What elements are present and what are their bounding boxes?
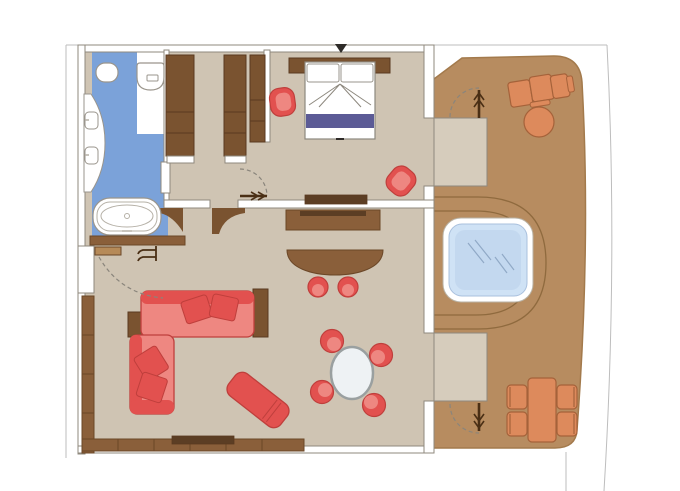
- wardrobe-mid-base: [225, 156, 246, 163]
- bathroom-pocket-door: [161, 162, 170, 193]
- outdoor-dining-table: [528, 378, 556, 442]
- sofa-pillow-2: [209, 294, 239, 322]
- suite-floor-plan: [0, 0, 680, 491]
- balcony-side-table: [524, 107, 554, 137]
- wardrobe-right: [250, 55, 265, 142]
- balcony-landing-living: [434, 333, 487, 401]
- bar-stool-2-seat: [342, 284, 354, 296]
- bathroom-wall-band: [90, 236, 185, 245]
- floor-plan-page: [0, 0, 680, 491]
- entry-door-recess: [78, 246, 94, 293]
- dining-table: [331, 347, 373, 399]
- toilet: [137, 63, 164, 90]
- wall-hallway-left: [164, 200, 210, 208]
- dining-chair-3-seat: [318, 383, 332, 397]
- bedroom-dresser: [305, 195, 367, 204]
- wardrobe-left-base: [167, 156, 194, 163]
- wall-basin: [96, 63, 118, 82]
- bed-pillow-right: [341, 64, 373, 82]
- bed-pillow-left: [307, 64, 339, 82]
- entry-door-leaf: [95, 247, 121, 255]
- wall-top: [78, 45, 434, 52]
- bar-stool-1-seat: [312, 284, 324, 296]
- hull-outline-right: [604, 45, 612, 491]
- hottub-water-shade: [455, 230, 521, 290]
- wall-balcony-lower: [424, 401, 434, 453]
- sofa-chaise-end: [130, 400, 174, 414]
- bed-runner: [306, 114, 374, 128]
- dining-chair-2-seat: [371, 350, 385, 364]
- wall-balcony-upper: [424, 45, 434, 118]
- tv: [300, 211, 366, 216]
- balcony-landing-bedroom: [434, 118, 487, 186]
- dining-chair-1-seat: [327, 337, 341, 351]
- sofa-arm-table: [128, 312, 142, 337]
- wardrobe-mid: [224, 55, 246, 156]
- sofa-side-table: [253, 289, 268, 337]
- dining-chair-4-seat: [364, 395, 378, 409]
- wardrobe-left: [166, 55, 194, 156]
- media-console: [172, 436, 234, 444]
